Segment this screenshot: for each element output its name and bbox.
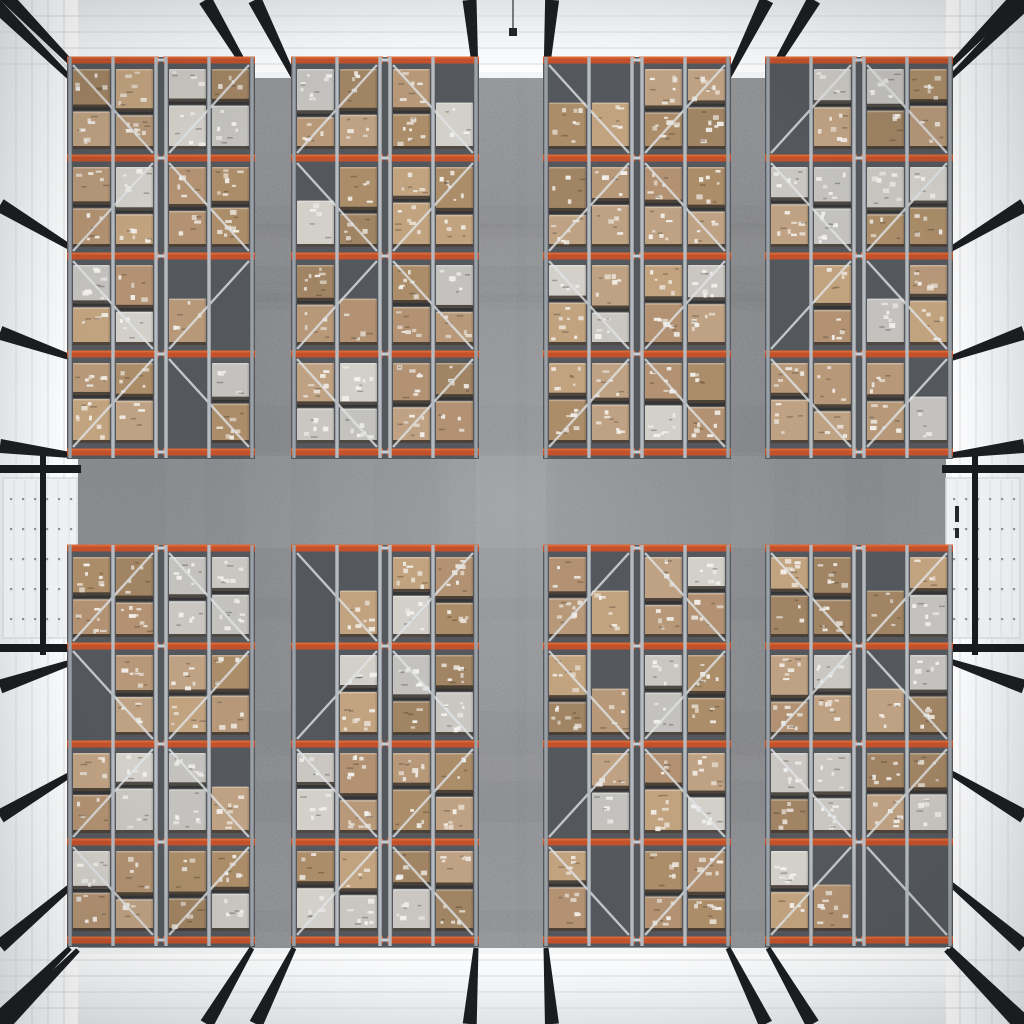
pallet-box <box>212 557 249 591</box>
warehouse-overhead-photo <box>0 0 1024 1024</box>
rack-block-row1-col2 <box>291 57 479 460</box>
pallet-box <box>393 557 430 592</box>
rack-block-row2-col4 <box>765 545 953 948</box>
pallet-box <box>73 557 110 595</box>
rack-block-row2-col2 <box>291 545 479 948</box>
pallet-box <box>910 655 947 693</box>
pallet-box <box>592 205 629 247</box>
pallet-box <box>645 655 682 689</box>
pallet-box <box>867 299 904 345</box>
pallet-box <box>549 655 586 698</box>
pallet-box <box>169 106 206 149</box>
pallet-box <box>436 557 473 599</box>
dock-door-right <box>942 465 1024 652</box>
pallet-box <box>910 595 947 637</box>
pallet-box <box>436 401 473 443</box>
pallet-box <box>814 265 851 306</box>
pallet-box <box>910 397 947 443</box>
door-top-rail <box>942 465 1024 473</box>
pallet-box <box>297 305 334 345</box>
pallet-box <box>393 69 430 110</box>
pallet-box <box>910 301 947 345</box>
pallet-box <box>645 363 682 402</box>
pallet-box <box>169 167 206 207</box>
pallet-box <box>340 115 377 149</box>
pallet-box <box>436 167 473 211</box>
door-handle-slot <box>955 528 959 538</box>
pallet-box <box>73 265 110 303</box>
pallet-box <box>645 406 682 443</box>
warehouse-scene <box>0 0 1024 1024</box>
door-bottom-rail <box>942 644 1024 652</box>
pallet-box <box>436 890 473 931</box>
pallet-box <box>169 697 206 735</box>
pallet-box <box>169 299 206 345</box>
lamp-fixture <box>509 28 517 36</box>
pallet-box <box>592 103 629 149</box>
pallet-box <box>116 557 153 599</box>
rack-block-row1-col1 <box>67 57 255 460</box>
pallet-box <box>436 797 473 833</box>
pallet-box <box>867 591 904 637</box>
pallet-box <box>393 167 430 199</box>
pallet-box <box>592 265 629 309</box>
pallet-box <box>169 601 206 637</box>
pallet-box <box>340 753 377 796</box>
pallet-box <box>549 400 586 443</box>
pallet-box <box>645 557 682 601</box>
pallet-box <box>436 215 473 247</box>
pallet-box <box>212 595 249 637</box>
pallet-box <box>436 753 473 793</box>
pallet-box <box>297 363 334 404</box>
pallet-box <box>73 307 110 345</box>
pallet-box <box>688 363 725 403</box>
pallet-box <box>645 265 682 299</box>
pallet-box <box>169 557 206 597</box>
pallet-box <box>645 605 682 637</box>
rack-block-row1-col4 <box>765 57 953 460</box>
door-handle-slot <box>955 506 959 522</box>
pallet-box <box>212 851 249 890</box>
pallet-box <box>116 789 153 833</box>
pallet-box <box>910 208 947 247</box>
pallet-box <box>212 363 249 400</box>
pallet-box <box>340 167 377 210</box>
pallet-box <box>645 693 682 735</box>
pallet-box <box>297 265 334 301</box>
pallet-box <box>688 593 725 637</box>
pallet-box <box>688 304 725 345</box>
rack-block-row1-col3 <box>543 57 731 460</box>
pallet-box <box>297 888 334 931</box>
pallet-box <box>169 851 206 895</box>
rack-block-row2-col3 <box>543 545 731 948</box>
pallet-box <box>688 899 725 931</box>
pallet-box <box>116 851 153 895</box>
pallet-box <box>116 401 153 443</box>
pallet-box <box>771 753 808 795</box>
pallet-box <box>393 655 430 697</box>
pallet-box <box>393 596 430 637</box>
door-track-right <box>972 455 978 655</box>
pallet-box <box>116 655 153 693</box>
pallet-box <box>910 106 947 149</box>
rack-block-row2-col1 <box>67 545 255 948</box>
pallet-box <box>393 701 430 735</box>
pallet-box <box>645 207 682 247</box>
pallet-box <box>340 851 377 891</box>
door-track-left <box>40 455 46 655</box>
pallet-box <box>393 889 430 931</box>
